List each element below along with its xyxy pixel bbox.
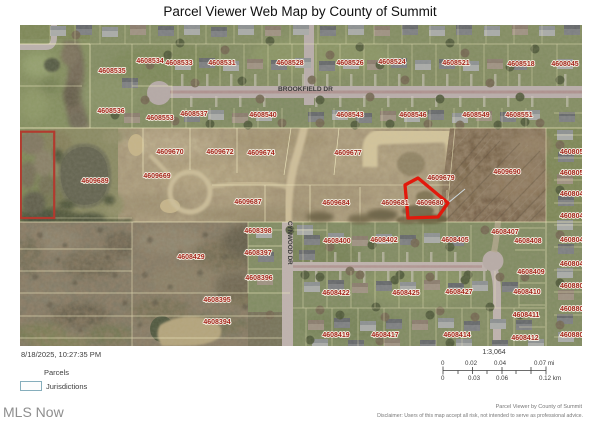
svg-text:4608546: 4608546 — [399, 112, 426, 119]
svg-text:4608518: 4608518 — [507, 61, 534, 68]
svg-text:4608045: 4608045 — [551, 61, 578, 68]
svg-text:0.07 mi: 0.07 mi — [534, 360, 554, 367]
svg-text:4609679: 4609679 — [427, 175, 454, 182]
svg-text:4608521: 4608521 — [442, 60, 469, 67]
svg-text:4608409: 4608409 — [517, 269, 544, 276]
svg-text:4608407: 4608407 — [491, 229, 518, 236]
svg-text:4608540: 4608540 — [249, 112, 276, 119]
svg-text:4608408: 4608408 — [514, 238, 541, 245]
svg-text:4608417: 4608417 — [371, 332, 398, 339]
svg-text:4609680: 4609680 — [416, 200, 443, 207]
svg-text:CYNWOOD DR: CYNWOOD DR — [286, 221, 293, 265]
svg-text:4608047: 4608047 — [560, 237, 582, 244]
svg-text:4608397: 4608397 — [244, 250, 271, 257]
svg-text:4609669: 4609669 — [143, 173, 170, 180]
svg-text:4608048: 4608048 — [560, 213, 582, 220]
svg-text:0: 0 — [441, 360, 445, 367]
svg-text:4609677: 4609677 — [334, 150, 361, 157]
svg-text:4608537: 4608537 — [180, 111, 207, 118]
svg-text:4608531: 4608531 — [208, 60, 235, 67]
svg-text:4608549: 4608549 — [462, 112, 489, 119]
svg-text:4608429: 4608429 — [177, 254, 204, 261]
svg-text:4608400: 4608400 — [323, 238, 350, 245]
svg-text:4608524: 4608524 — [378, 59, 405, 66]
svg-text:4608427: 4608427 — [445, 289, 472, 296]
svg-text:4608394: 4608394 — [203, 319, 230, 326]
svg-text:4608805: 4608805 — [560, 283, 582, 290]
svg-text:0.04: 0.04 — [494, 360, 507, 367]
svg-text:4608414: 4608414 — [443, 332, 470, 339]
svg-text:0.03: 0.03 — [468, 375, 481, 382]
svg-text:4608051: 4608051 — [560, 149, 582, 156]
svg-text:0.12 km: 0.12 km — [539, 375, 561, 382]
svg-text:4608402: 4608402 — [370, 237, 397, 244]
svg-text:0.06: 0.06 — [496, 375, 509, 382]
svg-text:4609674: 4609674 — [247, 150, 274, 157]
svg-text:4609670: 4609670 — [156, 149, 183, 156]
svg-text:4609672: 4609672 — [206, 149, 233, 156]
svg-text:4608534: 4608534 — [136, 58, 163, 65]
svg-text:4608551: 4608551 — [505, 112, 532, 119]
svg-text:4608806: 4608806 — [560, 306, 582, 313]
svg-text:0: 0 — [441, 375, 445, 382]
svg-text:4609690: 4609690 — [493, 169, 520, 176]
svg-text:0.02: 0.02 — [465, 360, 478, 367]
svg-text:4608425: 4608425 — [392, 290, 419, 297]
svg-text:4608526: 4608526 — [336, 60, 363, 67]
svg-text:4608809: 4608809 — [560, 332, 582, 339]
svg-text:4608419: 4608419 — [322, 332, 349, 339]
svg-text:4608412: 4608412 — [511, 335, 538, 342]
svg-text:4608543: 4608543 — [336, 112, 363, 119]
svg-text:BROOKFIELD DR: BROOKFIELD DR — [278, 86, 333, 93]
svg-text:4608536: 4608536 — [97, 108, 124, 115]
svg-text:4609689: 4609689 — [81, 178, 108, 185]
svg-text:4608411: 4608411 — [513, 312, 540, 319]
svg-text:4608398: 4608398 — [244, 228, 271, 235]
svg-text:4608553: 4608553 — [146, 115, 173, 122]
svg-text:4609684: 4609684 — [322, 200, 349, 207]
svg-text:4608535: 4608535 — [98, 68, 125, 75]
svg-text:4608405: 4608405 — [441, 237, 468, 244]
svg-text:4609687: 4609687 — [234, 199, 261, 206]
svg-text:4608422: 4608422 — [322, 290, 349, 297]
svg-text:4608049: 4608049 — [560, 191, 582, 198]
svg-text:4608410: 4608410 — [513, 289, 540, 296]
svg-text:4609681: 4609681 — [381, 200, 408, 207]
svg-text:4608396: 4608396 — [245, 275, 272, 282]
svg-text:4608528: 4608528 — [276, 60, 303, 67]
svg-text:4608050: 4608050 — [560, 170, 582, 177]
svg-text:4608533: 4608533 — [165, 60, 192, 67]
svg-text:4608395: 4608395 — [203, 297, 230, 304]
svg-text:4608046: 4608046 — [560, 261, 582, 268]
